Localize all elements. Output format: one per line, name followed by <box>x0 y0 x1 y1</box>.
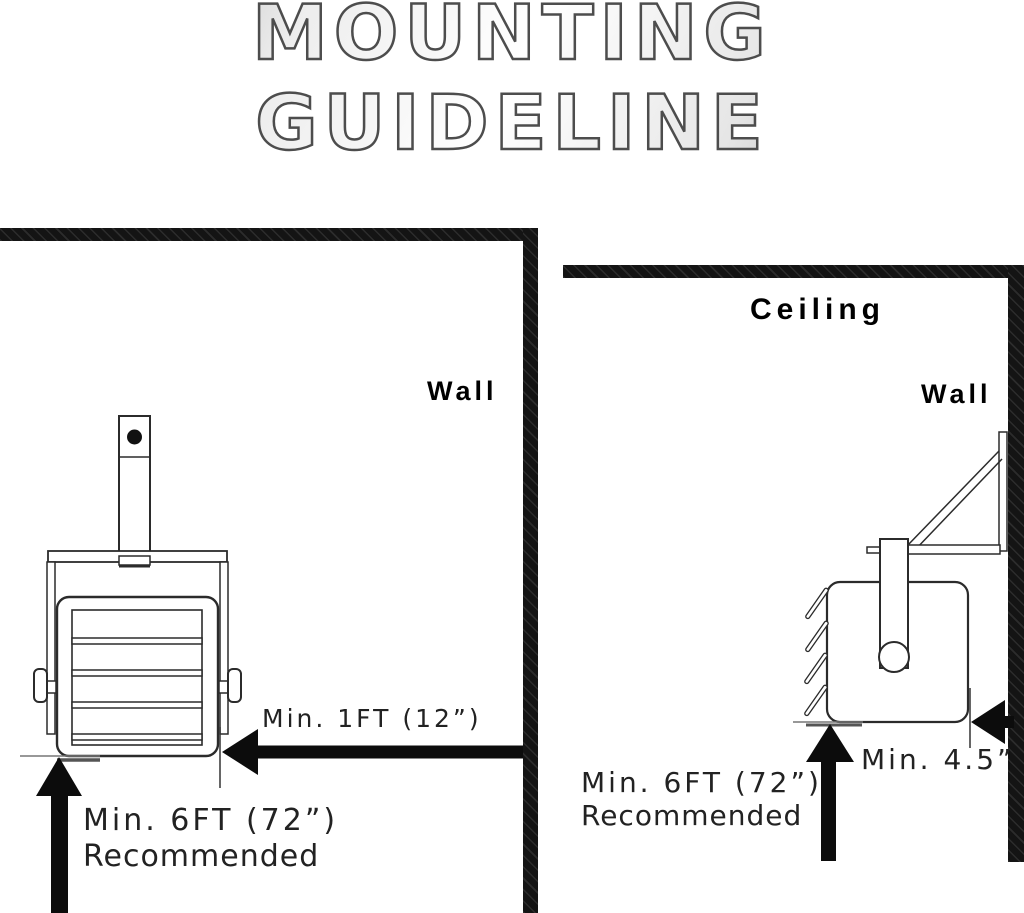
yoke-arm-left <box>47 562 55 734</box>
louver-fin <box>804 685 828 717</box>
mounting-hole <box>127 430 142 445</box>
yoke-arm-right <box>220 562 228 734</box>
wall-clearance-arrow-icon <box>222 729 523 775</box>
knob-stem-left <box>47 681 56 693</box>
knob-stem-right <box>219 681 228 693</box>
heater-front-view <box>34 416 241 756</box>
bracket-arm <box>908 545 1000 554</box>
bracket-strut <box>914 459 1002 551</box>
heater-side-view <box>804 432 1007 722</box>
page-title-line1: MOUNTING <box>252 0 772 77</box>
wall-bracket-plate <box>999 432 1007 551</box>
floor-clearance-arrow-icon <box>36 757 82 913</box>
page-title: MOUNTING GUIDELINE <box>0 0 1024 168</box>
louver-slat <box>72 734 202 740</box>
page-title-line2: GUIDELINE <box>255 78 769 167</box>
louver-slat <box>72 702 202 708</box>
floor-note-label-right: Recommended <box>581 799 802 832</box>
louver-fin <box>804 653 828 685</box>
ceiling-label: Ceiling <box>750 293 885 327</box>
bracket-strut <box>907 451 999 546</box>
left-ceiling-bar <box>0 228 538 241</box>
floor-clearance-label-left: Min. 6FT (72”) <box>83 803 338 838</box>
louver-slat <box>72 638 202 644</box>
side-clearance-label-left: Min. 1FT (12”) <box>262 704 482 733</box>
yoke-tab <box>119 556 150 565</box>
pivot-knob <box>879 642 909 672</box>
wall-clearance-arrow-icon <box>971 700 1014 744</box>
louver-slat <box>72 670 202 676</box>
wall-label-right: Wall <box>921 379 992 410</box>
louver-fins <box>804 588 829 717</box>
floor-note-label-left: Recommended <box>83 839 319 874</box>
right-ceiling-bar <box>563 265 1024 278</box>
side-clearance-label-right: Min. 4.5” <box>861 743 1015 776</box>
knob-left <box>34 669 47 702</box>
knob-right <box>228 669 241 702</box>
louver-fin <box>805 621 829 653</box>
mounting-guideline-page: MOUNTING GUIDELINE Wall Ceiling Wall Min… <box>0 0 1024 913</box>
louver-fin <box>805 588 829 620</box>
bracket-arm-tab <box>867 547 880 553</box>
wall-label-left: Wall <box>427 376 498 407</box>
floor-clearance-label-right: Min. 6FT (72”) <box>581 766 822 799</box>
